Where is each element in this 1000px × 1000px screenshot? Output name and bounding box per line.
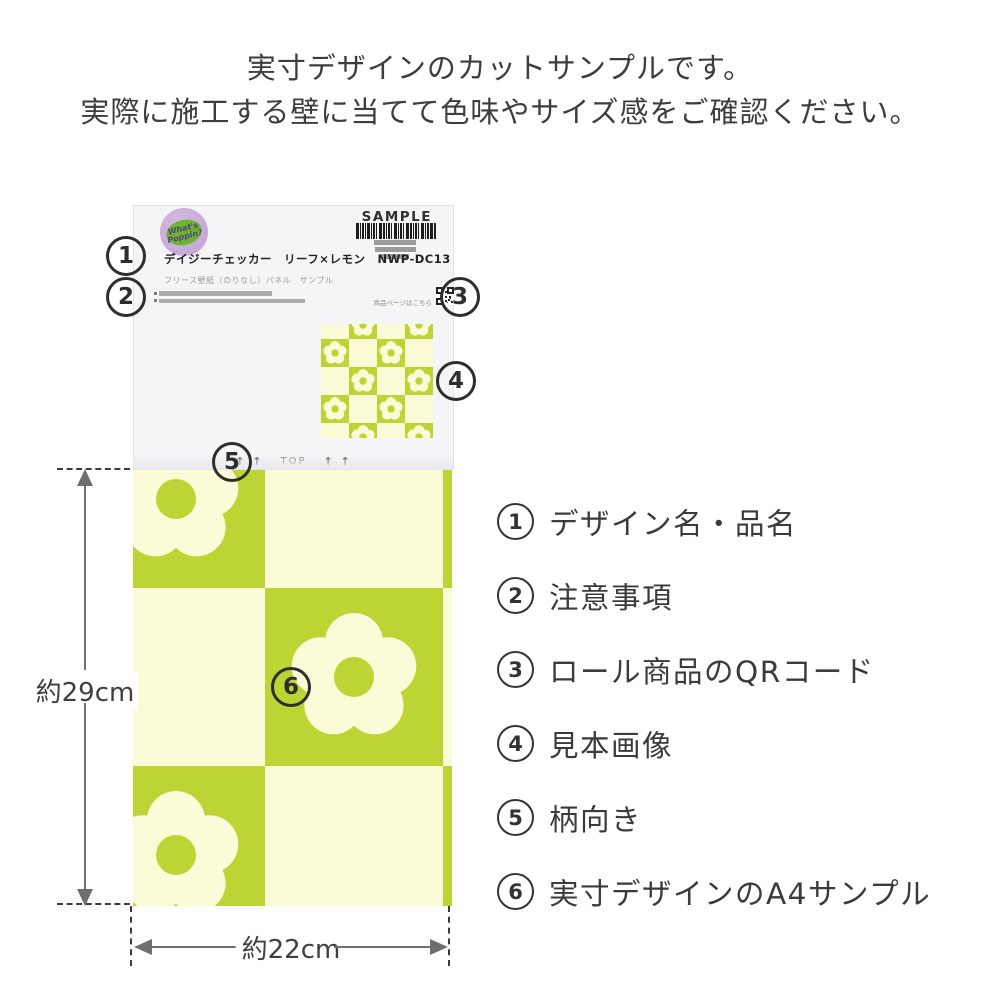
- up-arrows-icon: ↑ ↑: [324, 455, 352, 468]
- callout-2: 2: [106, 277, 146, 317]
- legend-label-4: 見本画像: [549, 723, 673, 765]
- pattern-thumbnail-image: [321, 324, 433, 438]
- page-title: 実寸デザインのカットサンプルです。 実際に施工する壁に当てて色味やサイズ感をご確…: [0, 46, 1000, 134]
- width-dimension-label: 約22cm: [236, 929, 347, 966]
- qr-caption: 商品ページはこちら: [134, 297, 432, 307]
- dimension-arrow-down-icon: [77, 889, 93, 906]
- dashed-line-right: [448, 906, 450, 966]
- legend-item-1: 1 デザイン名・品名: [497, 503, 931, 540]
- legend-number-4: 4: [497, 725, 534, 762]
- dimension-arrow-right-icon: [430, 939, 448, 955]
- legend-number-2: 2: [497, 577, 534, 614]
- callout-4: 4: [436, 361, 476, 401]
- barcode-icon: [356, 223, 436, 239]
- product-explainer-image: 実寸デザインのカットサンプルです。 実際に施工する壁に当てて色味やサイズ感をご確…: [0, 0, 1000, 1000]
- legend-number-5: 5: [497, 799, 534, 836]
- legend-number-1: 1: [497, 503, 534, 540]
- legend-label-1: デザイン名・品名: [549, 501, 797, 543]
- callout-1: 1: [106, 236, 146, 276]
- legend-item-2: 2 注意事項: [497, 577, 931, 614]
- top-label: TOP: [280, 456, 306, 467]
- dashed-line-top: [57, 468, 130, 470]
- legend-item-6: 6 実寸デザインのA4サンプル: [497, 873, 931, 910]
- width-dimension-line: [334, 946, 430, 948]
- sample-label-card: What's Poppin? SAMPLE: [133, 205, 454, 470]
- dimension-arrow-left-icon: [134, 939, 152, 955]
- legend-item-5: 5 柄向き: [497, 799, 931, 836]
- dashed-line-bottom: [57, 903, 130, 905]
- width-dimension-line: [151, 946, 248, 948]
- product-name: デイジーチェッカー リーフ×レモン NWP-DC13: [164, 251, 451, 267]
- legend-number-3: 3: [497, 651, 534, 688]
- legend-label-6: 実寸デザインのA4サンプル: [549, 871, 931, 913]
- legend-item-4: 4 見本画像: [497, 725, 931, 762]
- legend: 1 デザイン名・品名 2 注意事項 3 ロール商品のQRコード 4 見本画像 5…: [497, 503, 931, 947]
- title-line-2: 実際に施工する壁に当てて色味やサイズ感をご確認ください。: [0, 90, 1000, 134]
- callout-5: 5: [212, 442, 252, 482]
- product-subtitle: フリース壁紙（のりなし）パネル サンプル: [164, 275, 333, 286]
- legend-label-5: 柄向き: [549, 797, 642, 839]
- legend-number-6: 6: [497, 873, 534, 910]
- dashed-line-left: [130, 906, 132, 966]
- callout-3: 3: [440, 277, 480, 317]
- height-dimension-line: [84, 703, 86, 889]
- brand-badge: What's Poppin?: [160, 208, 208, 256]
- pattern-orientation-marks: ↑ ↑ TOP ↑ ↑: [134, 453, 453, 469]
- title-line-1: 実寸デザインのカットサンプルです。: [0, 46, 1000, 90]
- height-dimension-line: [84, 484, 86, 670]
- legend-label-2: 注意事項: [549, 575, 673, 617]
- brand-badge-blob: What's Poppin?: [164, 216, 205, 249]
- callout-6: 6: [271, 667, 311, 707]
- legend-label-3: ロール商品のQRコード: [549, 649, 875, 691]
- legend-item-3: 3 ロール商品のQRコード: [497, 651, 931, 688]
